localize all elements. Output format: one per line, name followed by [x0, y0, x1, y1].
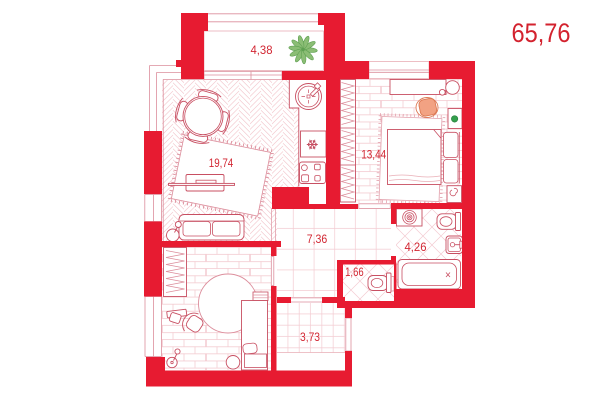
svg-text:1,66: 1,66	[345, 265, 364, 279]
svg-text:4,38: 4,38	[251, 43, 273, 57]
svg-text:13,44: 13,44	[361, 148, 386, 162]
svg-text:19,74: 19,74	[209, 156, 234, 170]
svg-text:7,36: 7,36	[307, 232, 328, 246]
svg-text:4,26: 4,26	[405, 240, 427, 254]
svg-text:3,73: 3,73	[300, 330, 320, 344]
svg-text:65,76: 65,76	[512, 18, 571, 48]
